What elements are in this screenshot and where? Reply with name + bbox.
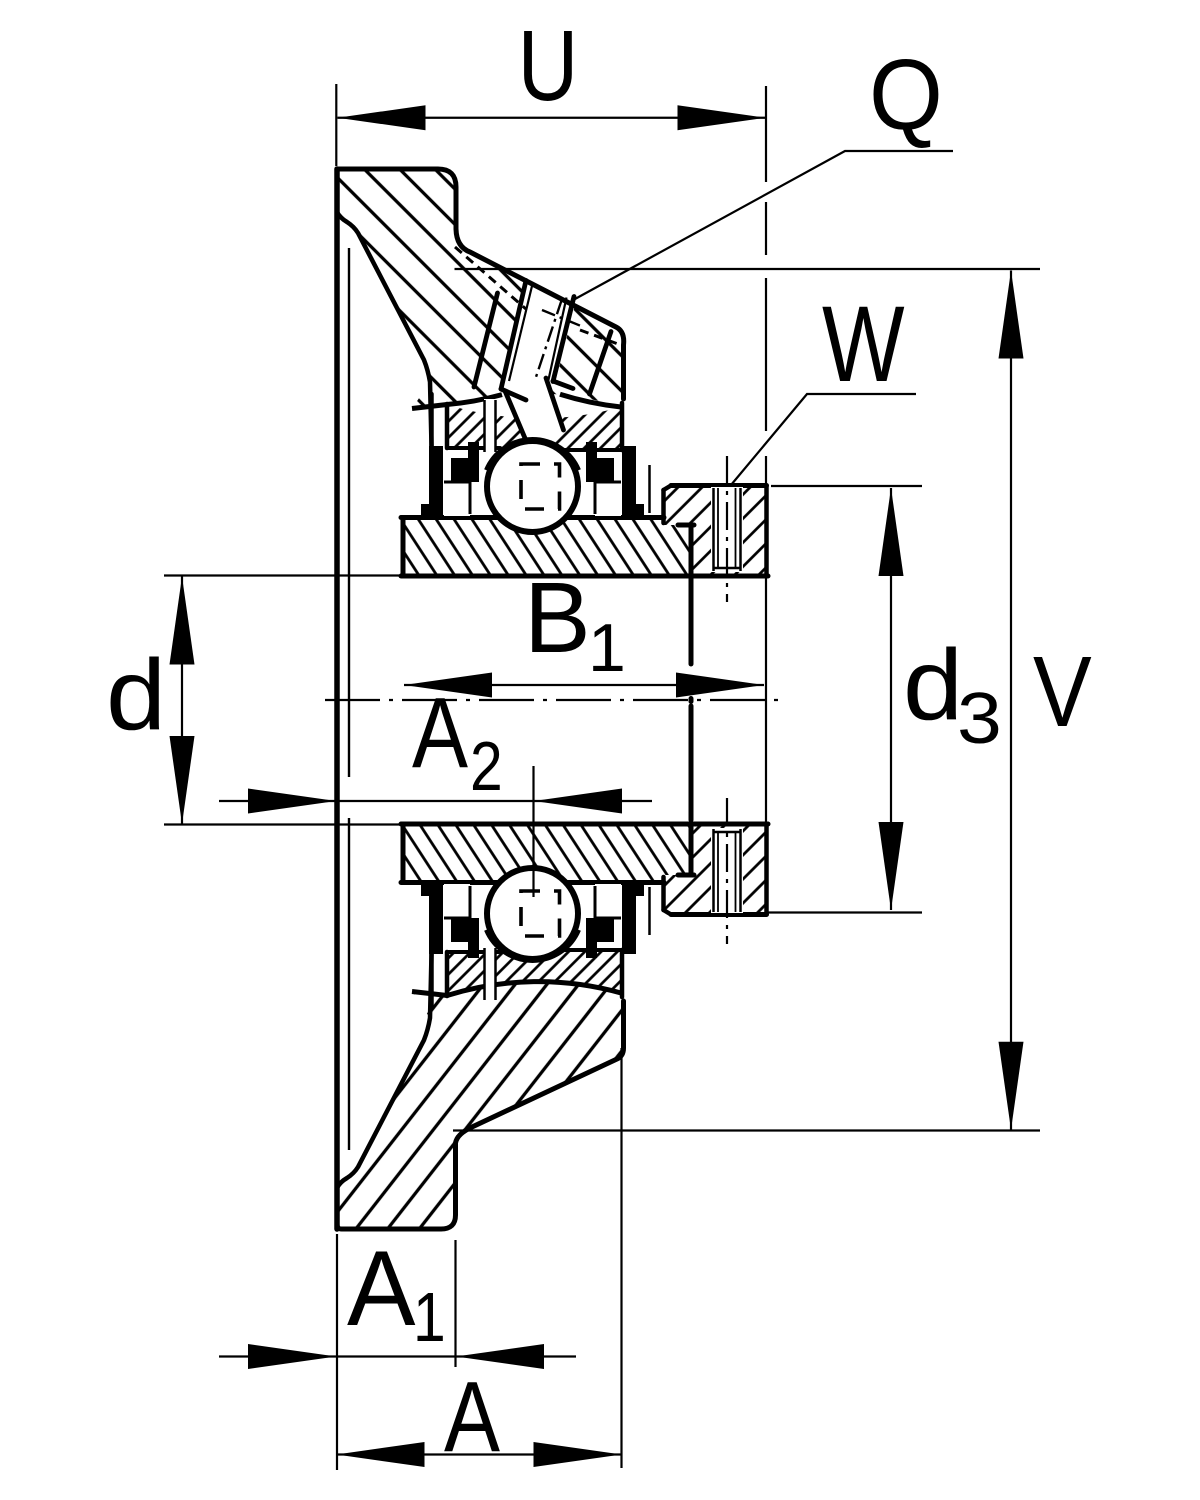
svg-text:3: 3 bbox=[957, 679, 1002, 759]
svg-text:d: d bbox=[106, 640, 166, 751]
svg-text:2: 2 bbox=[470, 726, 503, 805]
svg-text:A: A bbox=[444, 1360, 500, 1473]
svg-text:V: V bbox=[1033, 636, 1092, 747]
svg-text:A: A bbox=[412, 676, 468, 789]
svg-text:U: U bbox=[518, 9, 579, 122]
svg-text:A: A bbox=[347, 1229, 416, 1348]
svg-text:B: B bbox=[524, 562, 591, 674]
svg-text:1: 1 bbox=[413, 1277, 446, 1356]
svg-text:Q: Q bbox=[869, 39, 943, 151]
svg-text:d: d bbox=[903, 630, 963, 741]
svg-text:1: 1 bbox=[588, 610, 626, 686]
svg-text:W: W bbox=[822, 283, 905, 404]
